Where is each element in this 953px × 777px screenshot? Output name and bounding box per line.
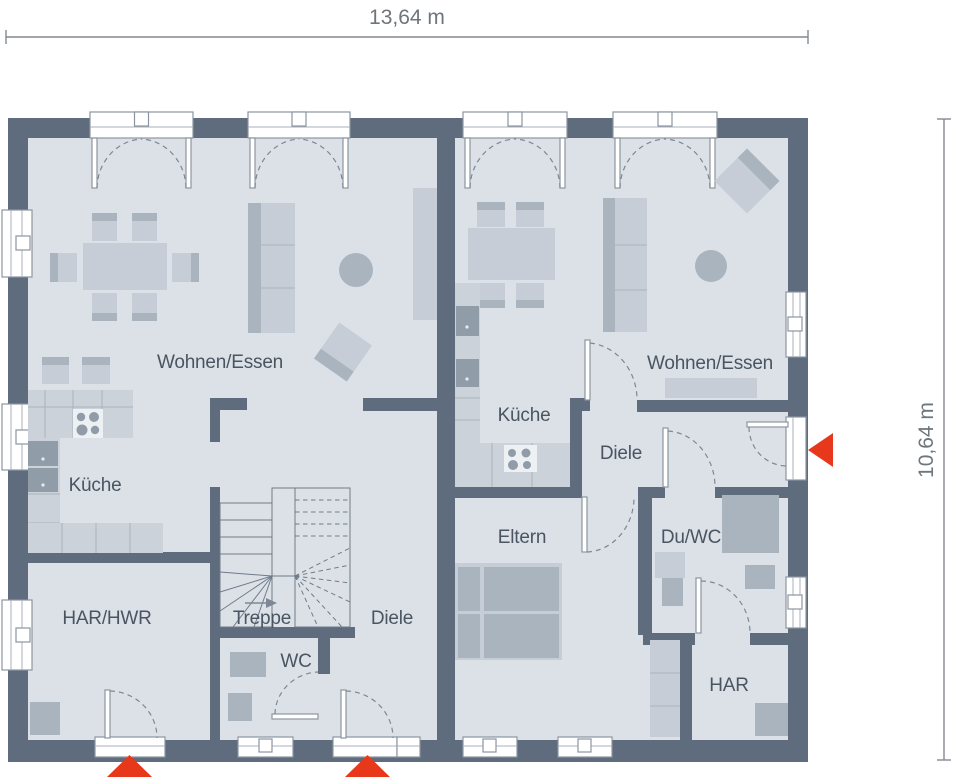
door-leaf	[747, 422, 788, 427]
door-leaf	[663, 428, 668, 487]
wardrobe-strip	[650, 640, 680, 737]
shower	[722, 495, 779, 553]
side-table-left	[339, 253, 373, 287]
dining-table	[468, 228, 555, 280]
dimension-width-label: 13,64 m	[369, 6, 445, 29]
door-leaf	[341, 690, 346, 738]
left-unit-floor	[28, 138, 437, 740]
oven	[28, 441, 58, 466]
tv-board-left	[413, 188, 437, 320]
shutter-box-icon	[658, 112, 672, 126]
dimension-height-label: 10,64 m	[915, 402, 938, 478]
room-label-kitchen-right: Küche	[498, 405, 551, 426]
room-label-showerwc-right: Du/WC	[661, 527, 721, 548]
room-label-parents-right: Eltern	[498, 527, 546, 548]
door-leaf	[105, 690, 110, 738]
room-label-hall-right: Diele	[600, 443, 642, 464]
shutter-box-icon	[578, 739, 591, 752]
shutter-box-icon	[788, 595, 802, 609]
shutter-box-icon	[508, 112, 522, 126]
shutter-box-icon	[16, 236, 30, 250]
sideboard-right	[665, 378, 757, 398]
stove	[504, 445, 537, 472]
sidelight-bottom	[397, 737, 420, 757]
oven	[28, 468, 58, 492]
door-leaf	[272, 714, 318, 719]
room-label-stair-left: Treppe	[233, 608, 291, 629]
window-bottom-parents-1	[463, 737, 517, 757]
washbasin	[230, 652, 266, 677]
entrance-arrow-icon	[808, 433, 833, 467]
oven	[456, 359, 479, 387]
shutter-box-icon	[135, 112, 149, 126]
storage-box-right	[755, 703, 788, 736]
stove	[73, 409, 103, 438]
window-right-2	[786, 577, 806, 628]
toilet	[662, 578, 683, 606]
shutter-box-icon	[292, 112, 306, 126]
shelf-unit-right	[603, 198, 647, 332]
side-table-right	[695, 250, 727, 282]
floorplan-canvas: 13,64 m 10,64 m	[0, 0, 953, 777]
dimension-width: 13,64 m	[6, 6, 808, 44]
oven	[456, 306, 479, 336]
shutter-box-icon	[16, 430, 30, 444]
window-left-2	[2, 404, 32, 470]
room-label-kitchen-left: Küche	[69, 475, 122, 496]
toilet	[228, 693, 252, 721]
door-leaf	[585, 340, 590, 400]
dining-table	[83, 243, 167, 290]
shutter-box-icon	[16, 628, 30, 642]
utility-box-left	[30, 702, 60, 735]
shutter-box-icon	[483, 739, 496, 752]
dimension-height: 10,64 m	[915, 119, 951, 760]
room-label-utility-left: HAR/HWR	[62, 608, 151, 629]
room-label-wc-left: WC	[280, 651, 311, 672]
room-label-living-right: Wohnen/Essen	[647, 353, 773, 374]
window-right-1	[786, 292, 806, 357]
shutter-box-icon	[788, 317, 802, 331]
shutter-box-icon	[259, 739, 272, 752]
window-left-3	[2, 600, 32, 670]
door-leaf	[582, 497, 587, 552]
window-left-1	[2, 210, 32, 277]
door-leaf	[696, 578, 701, 633]
window-bottom-wc	[238, 737, 293, 757]
bed-parents	[455, 563, 562, 660]
washbasin	[745, 565, 775, 589]
room-label-storage-right: HAR	[709, 675, 749, 696]
room-label-hall-left: Diele	[371, 608, 413, 629]
shelf-unit-left	[248, 203, 295, 333]
window-bottom-parents-2	[558, 737, 612, 757]
room-label-living-left: Wohnen/Essen	[157, 352, 283, 373]
